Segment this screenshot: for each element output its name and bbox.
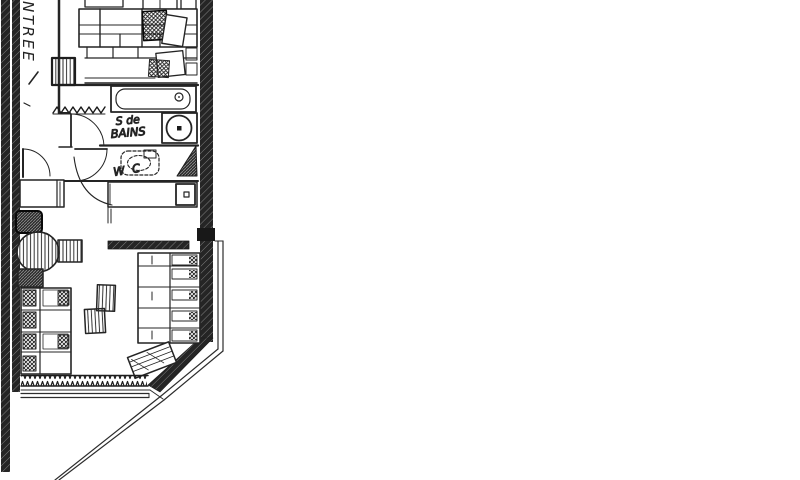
entry-hall bbox=[20, 149, 112, 207]
entrance-label: ENTREE bbox=[19, 0, 37, 63]
page-canvas: ENTREE bbox=[0, 0, 800, 480]
sofa-cushion bbox=[23, 290, 36, 306]
towel-scallop-band bbox=[53, 107, 105, 113]
shelf-hatch bbox=[189, 270, 197, 278]
living-room bbox=[16, 211, 200, 378]
dining-table bbox=[17, 232, 59, 272]
bathroom-label-line2: BAINS bbox=[110, 124, 146, 141]
window-zigzag bbox=[21, 376, 147, 386]
railing-diagonal-long bbox=[55, 396, 161, 480]
sofa-cushion bbox=[23, 312, 36, 328]
sofa-cushion bbox=[23, 334, 36, 349]
partition-bar bbox=[108, 241, 189, 249]
wall-shelf-box bbox=[186, 63, 197, 75]
cutoff-furniture bbox=[85, 0, 123, 7]
entrance-corridor: ENTREE bbox=[19, 0, 38, 106]
floor-plan-drawing: ENTREE bbox=[0, 0, 240, 480]
sofa-cushion-small bbox=[58, 291, 69, 305]
pen-tick bbox=[29, 72, 38, 84]
shelf-hatch bbox=[189, 331, 197, 340]
left-wall-outer bbox=[1, 0, 10, 472]
wall-pier bbox=[197, 228, 215, 241]
bedroom bbox=[52, 0, 197, 85]
radiator bbox=[52, 58, 75, 85]
wc-door-arc bbox=[75, 149, 107, 181]
shelf-hatch bbox=[189, 256, 197, 264]
wc-label: W C bbox=[112, 161, 143, 179]
corner-hatch-triangle bbox=[177, 146, 197, 176]
blanket-tilted bbox=[162, 15, 187, 47]
washbasin-drain bbox=[177, 126, 182, 131]
fridge bbox=[16, 211, 42, 233]
left-wall-inner bbox=[12, 0, 20, 392]
bathroom-door-arc bbox=[71, 114, 104, 146]
bathtub bbox=[111, 86, 196, 112]
shelf-hatch bbox=[189, 312, 197, 320]
shelf-hatch bbox=[189, 291, 197, 299]
stool-lower bbox=[84, 308, 105, 333]
sofa-cushion bbox=[23, 356, 36, 371]
sofa-cushion-small bbox=[58, 335, 69, 348]
chair-bottom bbox=[18, 269, 43, 287]
cutoff-furniture bbox=[181, 0, 196, 9]
right-wall bbox=[200, 0, 213, 342]
kitchenette bbox=[108, 182, 197, 207]
pen-tick-small bbox=[24, 103, 30, 106]
drain-dot bbox=[178, 96, 180, 98]
bathroom: S de BAINS bbox=[53, 86, 197, 146]
railing-diagonal-long bbox=[59, 400, 164, 480]
stool-upper bbox=[97, 285, 116, 312]
cushion-hatched bbox=[148, 59, 169, 77]
chair-right bbox=[58, 240, 82, 262]
entrance-door-arc bbox=[23, 149, 50, 176]
wc-room: W C bbox=[75, 146, 197, 181]
